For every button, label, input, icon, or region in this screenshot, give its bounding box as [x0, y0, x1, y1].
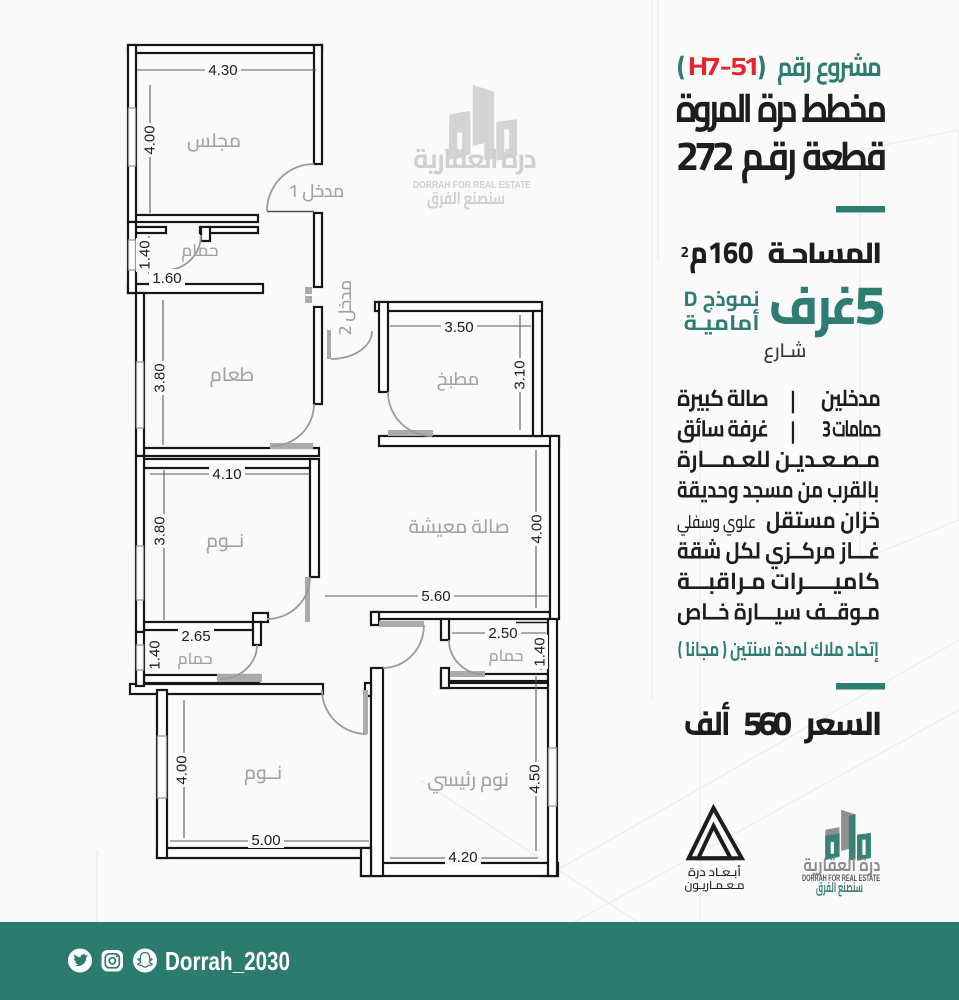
svg-text:4.10: 4.10 — [212, 466, 241, 483]
svg-text:4.20: 4.20 — [448, 849, 477, 866]
svg-text:DORRAH FOR REAL ESTATE: DORRAH FOR REAL ESTATE — [802, 873, 880, 883]
svg-text:2.50: 2.50 — [488, 625, 517, 642]
svg-text:1.40: 1.40 — [532, 637, 549, 666]
svg-text:5.00: 5.00 — [251, 832, 280, 849]
svg-text:3.10: 3.10 — [512, 360, 529, 389]
svg-text:4.00: 4.00 — [142, 125, 159, 154]
svg-text:Dorrah_2030: Dorrah_2030 — [165, 946, 290, 976]
svg-text:1.40: 1.40 — [137, 240, 154, 269]
svg-text:1.40: 1.40 — [147, 640, 164, 669]
svg-text:4.50: 4.50 — [527, 764, 544, 793]
svg-text:1.60: 1.60 — [152, 270, 181, 287]
svg-text:4.00: 4.00 — [529, 514, 546, 543]
svg-text:3.50: 3.50 — [444, 319, 473, 336]
svg-text:4.30: 4.30 — [208, 62, 237, 79]
svg-text:DORRAH FOR REAL ESTATE: DORRAH FOR REAL ESTATE — [413, 179, 531, 191]
svg-text:5.60: 5.60 — [421, 588, 450, 605]
svg-text:3.80: 3.80 — [152, 363, 169, 392]
svg-text:4.00: 4.00 — [174, 755, 191, 784]
svg-text:3.80: 3.80 — [152, 516, 169, 545]
svg-text:2.65: 2.65 — [181, 628, 210, 645]
